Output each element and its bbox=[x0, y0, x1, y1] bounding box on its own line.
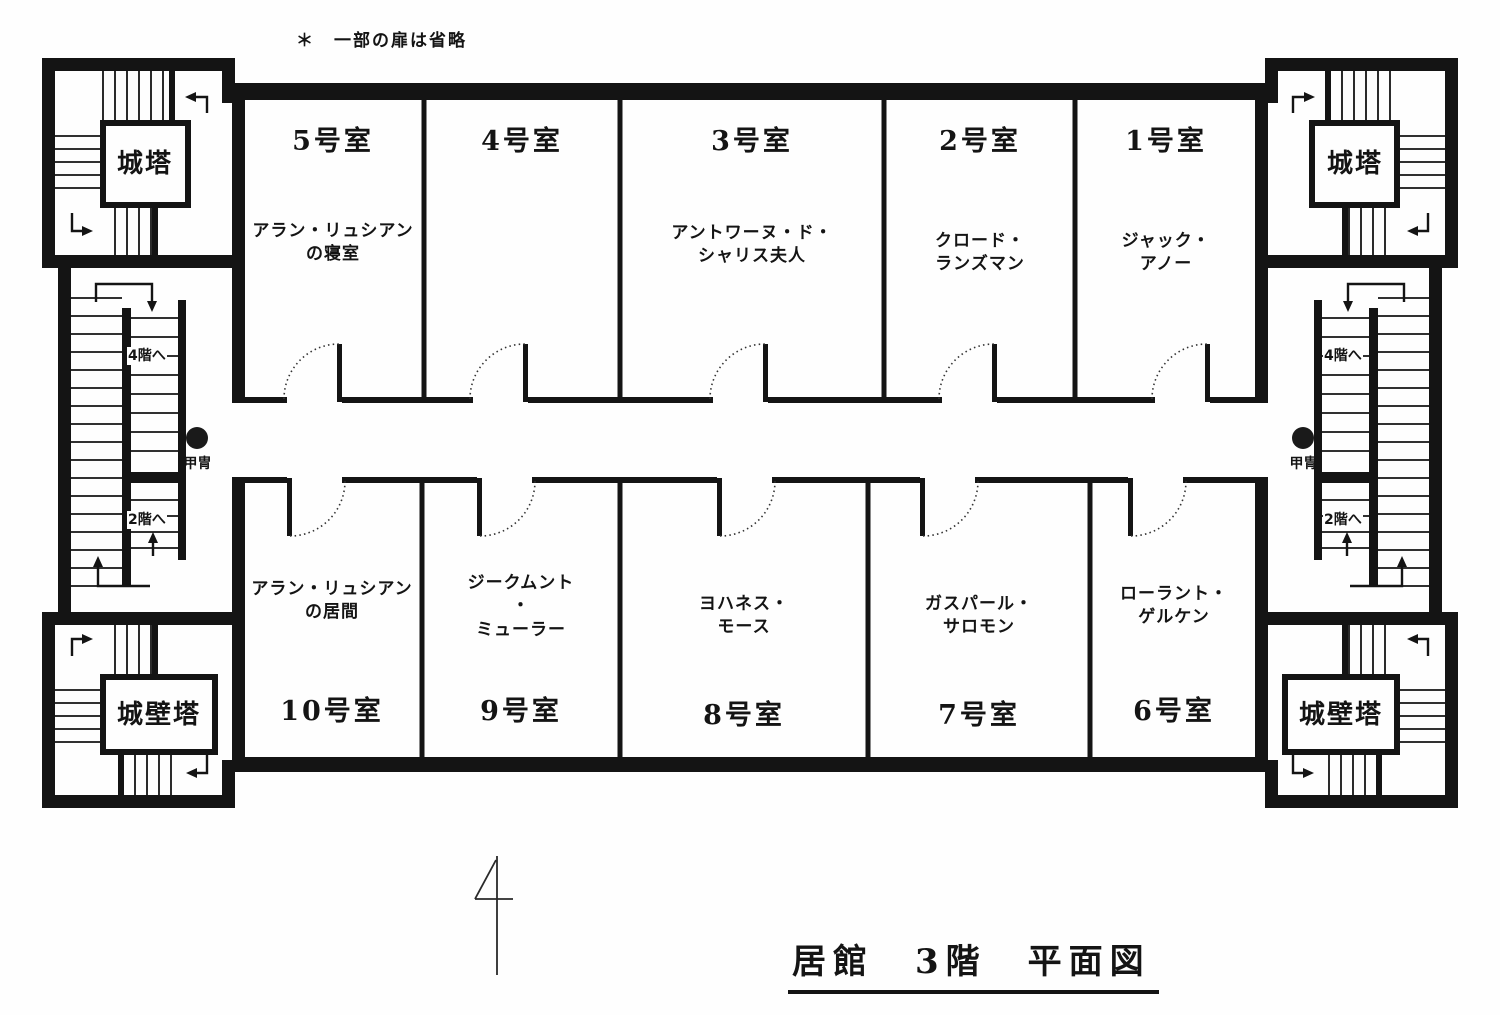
stairs-right-to-2f-label: 2階へ bbox=[1323, 511, 1363, 529]
wall-stairwell-left-outer bbox=[58, 268, 71, 612]
door-room-5 bbox=[284, 344, 342, 402]
room-6-occupant: ローラント・ゲルケン bbox=[1069, 583, 1279, 630]
room-2-number: 2号室 bbox=[905, 124, 1055, 159]
stair-flight-separator bbox=[122, 472, 178, 483]
stair-treads bbox=[1322, 318, 1369, 451]
stair-treads bbox=[131, 318, 178, 451]
tower-top-right-label: 城塔 bbox=[1305, 148, 1405, 182]
stair-up-arrow bbox=[1348, 284, 1404, 305]
room-7-occupant: ガスパール・サロモン bbox=[874, 593, 1084, 640]
stair-treads bbox=[1378, 298, 1429, 586]
room-9-occupant: ジークムント・ミューラー bbox=[416, 572, 626, 642]
tower-bottom-left-label: 城壁塔 bbox=[99, 699, 219, 733]
door-room-3 bbox=[710, 344, 768, 402]
numeral-4-mark bbox=[475, 856, 513, 975]
door-room-1 bbox=[1152, 344, 1210, 402]
room-9-number: 9号室 bbox=[446, 694, 596, 729]
stairs-right-to-4f-label: 4階へ bbox=[1323, 347, 1363, 365]
armor-dot bbox=[186, 427, 208, 449]
room-partitions bbox=[420, 100, 1093, 757]
wall-stairwell-left-inner bbox=[178, 300, 186, 560]
door-room-7 bbox=[920, 478, 978, 536]
wall-bottom-band bbox=[232, 757, 1268, 772]
armor-right-label: 甲冑 bbox=[1281, 455, 1326, 473]
room-5-number: 5号室 bbox=[258, 124, 408, 159]
stairs-left-to-4f-label: 4階へ bbox=[127, 347, 167, 365]
stair-center-rail bbox=[1369, 308, 1378, 587]
stair-treads bbox=[71, 298, 122, 586]
wall-stairwell-right-outer bbox=[1429, 268, 1442, 612]
door-room-6 bbox=[1128, 478, 1186, 536]
door-room-8 bbox=[717, 478, 775, 536]
room-10-occupant: アラン・リュシアンの居間 bbox=[227, 578, 437, 625]
plan-title: 居館 3階 平面図 bbox=[788, 934, 1159, 994]
stairs-left-to-2f-label: 2階へ bbox=[127, 511, 167, 529]
wall-top-band bbox=[232, 83, 1268, 100]
door-room-4 bbox=[470, 344, 528, 402]
door-room-2 bbox=[939, 344, 997, 402]
corridor-walls bbox=[232, 397, 1268, 483]
room-5-occupant: アラン・リュシアンの寝室 bbox=[228, 220, 438, 267]
room-1-number: 1号室 bbox=[1091, 124, 1241, 159]
armor-left-label: 甲冑 bbox=[175, 455, 220, 473]
floor-plan-page: ＊ 一部の扉は省略 居館 3階 平面図 城塔 城塔 城壁塔 城壁塔 4階へ 2階… bbox=[0, 0, 1500, 1015]
tower-bottom-right-label: 城壁塔 bbox=[1281, 699, 1401, 733]
stair-up-arrow bbox=[96, 284, 152, 305]
room-3-number: 3号室 bbox=[677, 124, 827, 159]
room-8-number: 8号室 bbox=[669, 698, 819, 733]
stair-flight-separator bbox=[1322, 472, 1378, 483]
door-room-9 bbox=[477, 478, 535, 536]
stairwell-left bbox=[71, 284, 208, 587]
room-6-number: 6号室 bbox=[1099, 694, 1249, 729]
room-10-number: 10号室 bbox=[257, 694, 407, 729]
plan-note: ＊ 一部の扉は省略 bbox=[296, 26, 467, 51]
door-room-10 bbox=[287, 478, 345, 536]
armor-dot bbox=[1292, 427, 1314, 449]
tower-top-left-label: 城塔 bbox=[95, 148, 195, 182]
room-3-occupant: アントワーヌ・ド・シャリス夫人 bbox=[647, 222, 857, 269]
room-8-occupant: ヨハネス・モース bbox=[639, 593, 849, 640]
room-1-occupant: ジャック・アノー bbox=[1061, 230, 1271, 277]
stairwell-right bbox=[1292, 284, 1429, 587]
wall-stairwell-right-inner bbox=[1314, 300, 1322, 560]
room-2-occupant: クロード・ランズマン bbox=[875, 230, 1085, 277]
room-4-number: 4号室 bbox=[447, 124, 597, 159]
room-7-number: 7号室 bbox=[904, 698, 1054, 733]
